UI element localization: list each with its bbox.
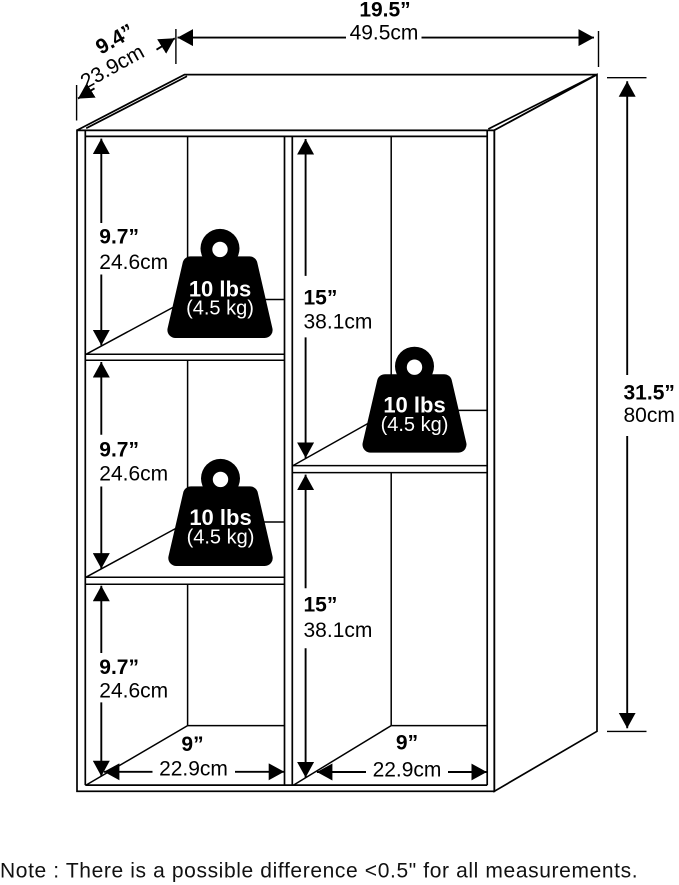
svg-text:9.7”: 9.7” (99, 439, 139, 462)
svg-text:(4.5 kg): (4.5 kg) (187, 526, 255, 548)
svg-text:(4.5 kg): (4.5 kg) (186, 298, 254, 320)
svg-text:24.6cm: 24.6cm (99, 251, 168, 274)
svg-text:9”: 9” (396, 732, 418, 755)
svg-text:Note : There is a possible dif: Note : There is a possible difference <0… (0, 860, 638, 883)
svg-text:38.1cm: 38.1cm (304, 619, 373, 642)
svg-text:9”: 9” (181, 733, 203, 756)
svg-text:31.5”: 31.5” (624, 382, 675, 405)
svg-text:22.9cm: 22.9cm (159, 758, 228, 781)
svg-text:49.5cm: 49.5cm (350, 22, 419, 45)
svg-text:38.1cm: 38.1cm (304, 311, 373, 334)
svg-text:(4.5 kg): (4.5 kg) (381, 414, 449, 436)
svg-text:22.9cm: 22.9cm (373, 759, 442, 782)
svg-text:15”: 15” (304, 287, 338, 310)
svg-text:15”: 15” (304, 593, 338, 616)
svg-text:24.6cm: 24.6cm (99, 680, 168, 703)
svg-text:80cm: 80cm (624, 404, 675, 427)
svg-text:9.7”: 9.7” (99, 656, 139, 679)
svg-text:9.7”: 9.7” (99, 226, 139, 249)
svg-text:24.6cm: 24.6cm (99, 463, 168, 486)
svg-text:19.5”: 19.5” (359, 0, 410, 22)
